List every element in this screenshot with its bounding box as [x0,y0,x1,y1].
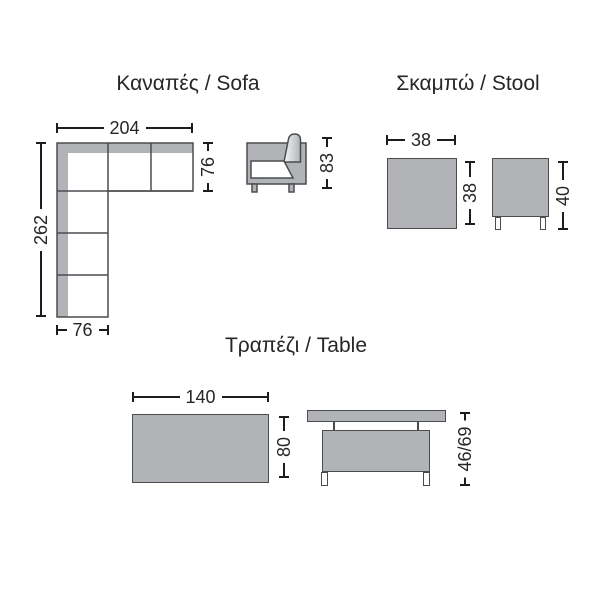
sofa-side-backrest [284,134,301,162]
stool-depth-value: 38 [461,177,479,209]
stool-side-view-body [492,158,549,217]
dimension-tick-right [454,135,456,145]
furniture-dimension-diagram: Καναπές / Sofa 204 262 76 76 [0,0,600,600]
sofa-width-dimension: 204 [56,121,193,135]
table-depth-value: 80 [275,431,293,463]
stool-width-dimension: 38 [386,133,456,147]
table-side-body [322,430,430,472]
sofa-depth-value: 262 [32,208,50,250]
sofa-side-view [246,132,308,194]
stool-depth-dimension: 38 [463,161,477,225]
table-width-dimension: 140 [132,390,269,404]
dimension-tick-right [191,123,193,133]
stool-height-value: 40 [554,179,572,211]
stool-leg [495,217,501,230]
sofa-bottom-width-value: 76 [66,321,98,339]
stool-leg [540,217,546,230]
dimension-tick-right [107,325,109,335]
stool-width-value: 38 [405,131,437,149]
sofa-side-leg [289,184,294,192]
dimension-tick-bottom [36,315,46,317]
table-side-top-slab [307,410,446,422]
table-height-dimension: 46/69 [458,412,472,486]
dimension-tick-bottom [279,476,289,478]
dimension-tick-bottom [558,228,568,230]
table-top-view [132,414,269,483]
sofa-seat-area [57,143,193,317]
sofa-width-value: 204 [103,119,145,137]
table-lift-connector [417,422,419,430]
sofa-depth-dimension: 262 [34,142,48,317]
table-leg [423,472,430,486]
sofa-title: Καναπές / Sofa [78,72,298,95]
stool-top-view [387,158,457,229]
dimension-tick-bottom [203,190,213,192]
table-title: Τραπέζι / Table [186,334,406,357]
table-lift-connector [333,422,335,430]
table-leg [321,472,328,486]
stool-height-dimension: 40 [556,161,570,230]
table-width-value: 140 [179,388,221,406]
dimension-tick-bottom [465,223,475,225]
sofa-top-view [56,142,194,318]
sofa-bottom-width-dimension: 76 [56,323,109,337]
sofa-backrest-strip-left [57,143,68,317]
sofa-side-leg [252,184,257,192]
sofa-height-dimension: 83 [320,137,334,189]
table-height-value: 46/69 [456,420,474,477]
dimension-tick-bottom [322,187,332,189]
sofa-arm-depth-dimension: 76 [201,142,215,192]
sofa-height-value: 83 [318,147,336,179]
table-depth-dimension: 80 [277,416,291,478]
dimension-tick-bottom [460,484,470,486]
stool-title: Σκαμπώ / Stool [358,72,578,95]
dimension-tick-right [267,392,269,402]
sofa-backrest-strip-top [57,143,193,153]
sofa-arm-depth-value: 76 [199,151,217,183]
